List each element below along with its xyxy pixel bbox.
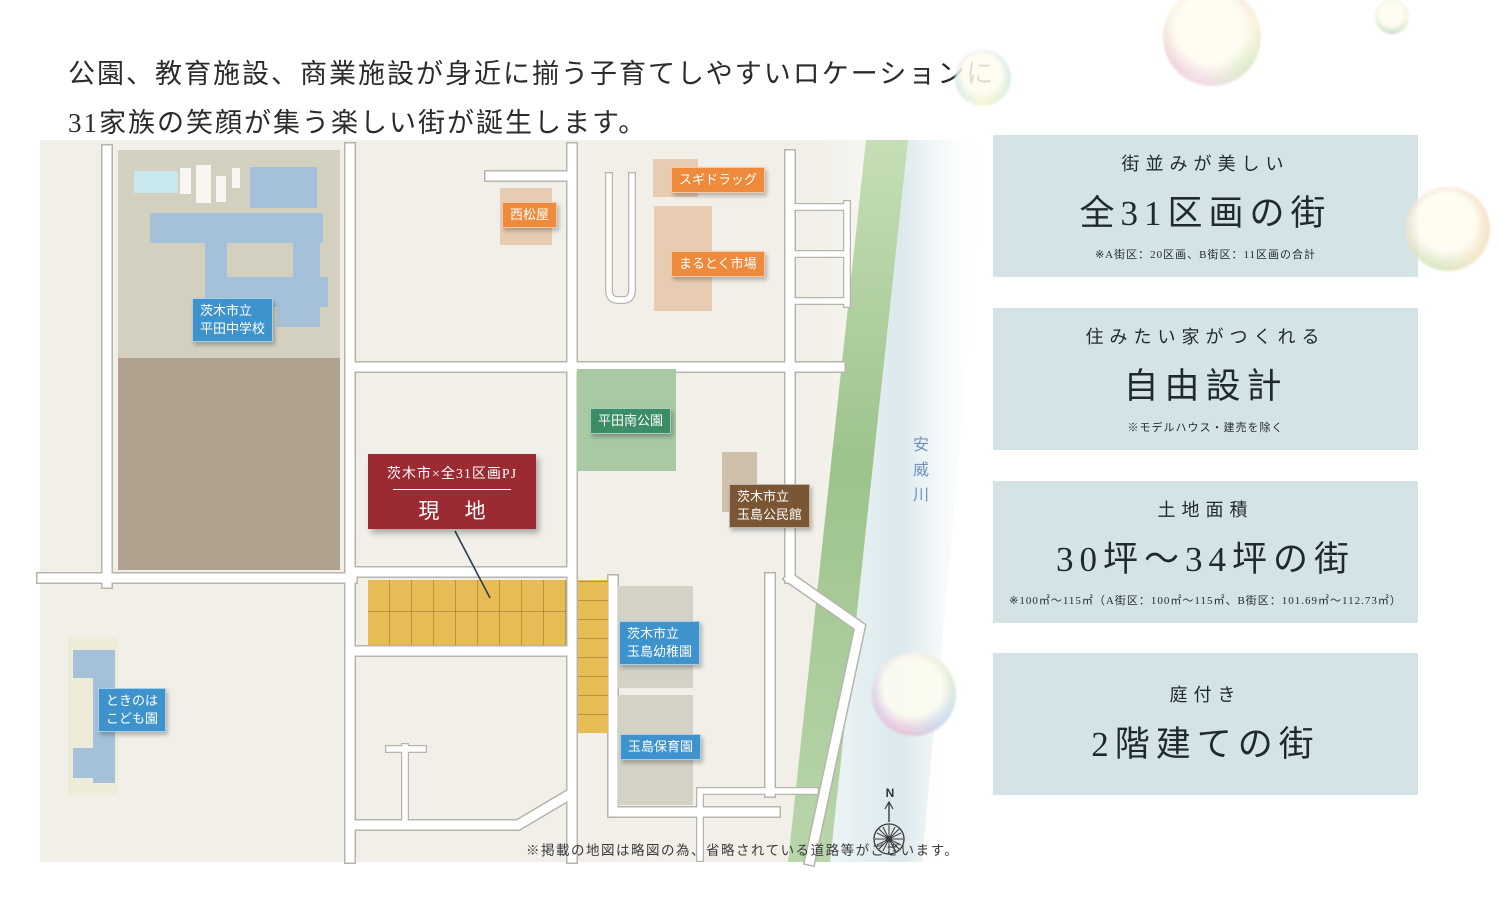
feature-sub-label: 庭付き: [993, 681, 1418, 707]
area-map: 茨木市立 平田中学校 西松屋 スギドラッグ まるとく市場 平田南公園 茨木市立 …: [40, 140, 960, 862]
headline-line1: 公園、教育施設、商業施設が身近に揃う子育てしやすいロケーションに: [68, 50, 995, 99]
compass-north-label: N: [879, 786, 901, 800]
site-box-divider: [393, 489, 511, 490]
site-location-box: 茨木市×全31区画PJ 現 地: [368, 454, 536, 529]
label-marutoku-market: まるとく市場: [671, 251, 765, 277]
feature-sub-label: 街並みが美しい: [993, 150, 1418, 176]
feature-note-label: ※100㎡〜115㎡（A街区：100㎡〜115㎡、B街区：101.69㎡〜112…: [993, 592, 1418, 608]
feature-main-label: 自由設計: [993, 358, 1418, 409]
feature-note-label: ※A街区：20区画、B街区：11区画の合計: [993, 246, 1418, 262]
feature-note-label: ※モデルハウス・建売を除く: [993, 419, 1418, 435]
label-tokinoha-kodomoen: ときのは こども園: [98, 688, 166, 732]
map-disclaimer-note: ※掲載の地図は略図の為、省略されている道路等がございます。: [526, 839, 959, 859]
label-tamashima-kominkan: 茨木市立 玉島公民館: [729, 484, 810, 528]
river-name: 安威川: [906, 436, 930, 511]
bubble-decoration: [1375, 0, 1409, 34]
feature-card-land-area: 土地面積 30坪〜34坪の街 ※100㎡〜115㎡（A街区：100㎡〜115㎡、…: [993, 481, 1418, 623]
feature-main-label: 全31区画の街: [993, 185, 1418, 236]
feature-card-lots: 街並みが美しい 全31区画の街 ※A街区：20区画、B街区：11区画の合計: [993, 135, 1418, 277]
label-tamashima-yochien: 茨木市立 玉島幼稚園: [619, 621, 700, 665]
label-hirata-minami-park: 平田南公園: [590, 408, 671, 434]
bubble-decoration: [1163, 0, 1261, 86]
feature-sub-label: 住みたい家がつくれる: [993, 323, 1418, 349]
feature-sub-label: 土地面積: [993, 496, 1418, 522]
feature-main-label: 2階建ての街: [993, 716, 1418, 767]
label-hirata-junior-high: 茨木市立 平田中学校: [192, 298, 273, 342]
label-tamashima-hoikuen: 玉島保育園: [620, 734, 701, 760]
headline: 公園、教育施設、商業施設が身近に揃う子育てしやすいロケーションに 31家族の笑顔…: [68, 50, 995, 147]
label-nishimatsuya: 西松屋: [502, 202, 557, 228]
feature-card-free-design: 住みたい家がつくれる 自由設計 ※モデルハウス・建売を除く: [993, 308, 1418, 450]
bubble-decoration: [1406, 187, 1490, 271]
label-sugi-drug: スギドラッグ: [671, 167, 765, 193]
promo-page: 公園、教育施設、商業施設が身近に揃う子育てしやすいロケーションに 31家族の笑顔…: [0, 0, 1500, 904]
site-leader-line: [455, 531, 490, 598]
feature-main-label: 30坪〜34坪の街: [993, 531, 1418, 582]
site-project-title: 茨木市×全31区画PJ: [368, 463, 536, 483]
site-label: 現 地: [368, 495, 536, 525]
feature-card-two-story: 庭付き 2階建ての街: [993, 653, 1418, 795]
